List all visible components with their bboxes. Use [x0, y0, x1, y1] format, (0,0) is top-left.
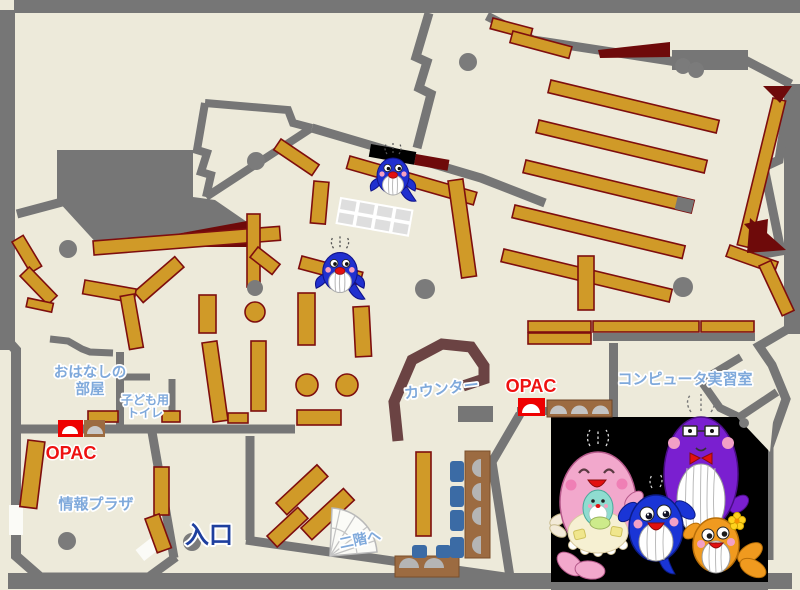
- bookshelf: [162, 411, 180, 422]
- bookshelf: [701, 321, 754, 332]
- chair: [412, 545, 427, 558]
- round-table: [336, 374, 358, 396]
- bookshelf: [353, 306, 372, 357]
- bookshelf: [199, 295, 216, 333]
- column: [58, 532, 76, 550]
- wall-computer-room-top: [593, 333, 755, 341]
- bookshelf: [298, 293, 315, 345]
- round-table: [296, 374, 318, 396]
- column: [247, 152, 265, 170]
- round-table: [245, 302, 265, 322]
- column: [247, 280, 263, 296]
- bookshelf: [228, 413, 248, 423]
- wall-bottom-strip: [551, 582, 768, 590]
- bookshelf: [310, 181, 329, 224]
- label-info-plaza: 情報プラザ: [58, 495, 133, 513]
- door-gap-infoplaza-left: [9, 505, 23, 535]
- chair: [450, 510, 464, 531]
- label-entrance: 入口: [185, 522, 233, 549]
- bookshelf: [578, 256, 594, 310]
- wall-top: [14, 0, 800, 13]
- library-floor-map-page: おはなしの 部屋 子ども用 トイレ OPAC 情報プラザ 入口 二階へ カウンタ…: [0, 0, 800, 590]
- chair: [436, 545, 451, 558]
- bookshelf: [297, 410, 341, 425]
- label-computer-room: コンピュータ実習室: [617, 370, 752, 388]
- wall-left: [0, 10, 15, 350]
- chair: [450, 486, 464, 507]
- column: [415, 279, 435, 299]
- bookshelf: [528, 333, 591, 344]
- column: [739, 418, 749, 428]
- bookshelf: [593, 321, 699, 332]
- chair: [450, 537, 464, 558]
- opac-station-left: [58, 420, 105, 437]
- label-opac-right: OPAC: [506, 376, 557, 396]
- bookshelf: [154, 467, 169, 515]
- bookshelf: [416, 452, 431, 536]
- column: [59, 240, 77, 258]
- label-ohanashi-room-line1: おはなしの: [54, 364, 127, 381]
- label-kids-toilet-line1: 子ども用: [121, 393, 169, 407]
- label-opac-left: OPAC: [46, 443, 97, 463]
- bookshelf: [251, 341, 266, 411]
- opac-counter-right: [547, 400, 612, 417]
- bookshelf: [528, 321, 591, 332]
- chair: [450, 461, 464, 482]
- column: [459, 53, 477, 71]
- wall-block-bookdrop: [458, 406, 493, 422]
- label-ohanashi-room-line2: 部屋: [76, 380, 105, 398]
- library-floor-map: おはなしの 部屋 子ども用 トイレ OPAC 情報プラザ 入口 二階へ カウンタ…: [0, 0, 800, 590]
- column: [673, 277, 693, 297]
- column: [688, 62, 704, 78]
- opac-station-right: [518, 398, 545, 416]
- label-kids-toilet-line2: トイレ: [127, 406, 163, 420]
